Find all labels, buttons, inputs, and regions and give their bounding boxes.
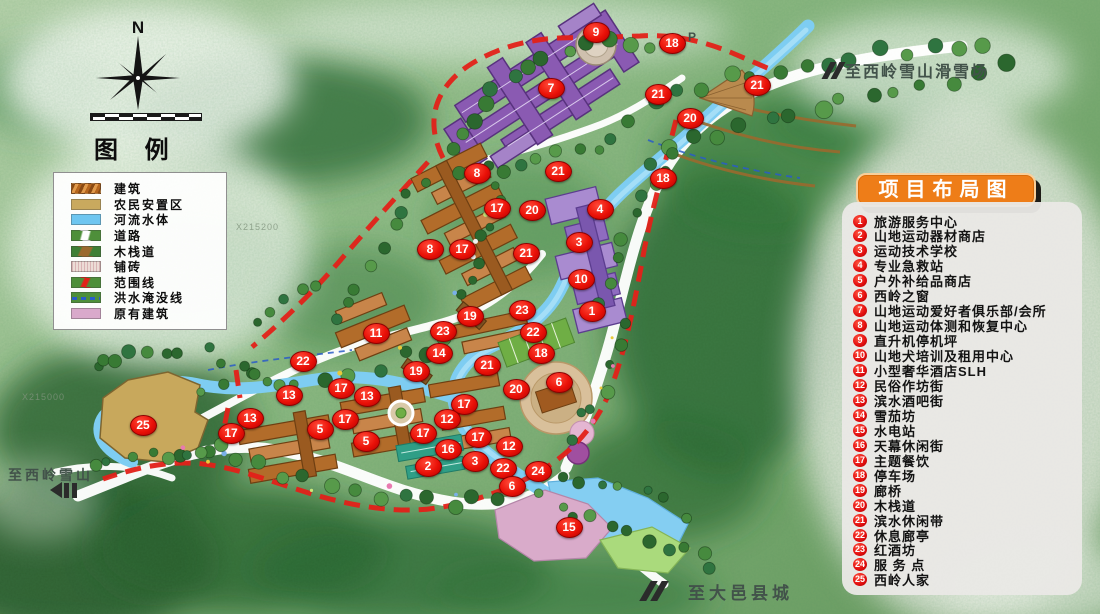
- project-item-number: 23: [853, 543, 867, 556]
- project-item-number: 12: [853, 379, 867, 392]
- project-item-number: 19: [853, 484, 867, 497]
- map-marker-25: 25: [130, 415, 157, 436]
- legend-swatch-resettlement: [71, 199, 101, 210]
- map-marker-12: 12: [496, 436, 523, 457]
- map-marker-15: 15: [556, 517, 583, 538]
- project-item-25: 25西岭人家: [853, 573, 1074, 587]
- map-marker-18: 18: [528, 343, 555, 364]
- project-item-number: 24: [853, 558, 867, 571]
- map-marker-22: 22: [290, 351, 317, 372]
- scale-bar-segment: [91, 117, 201, 120]
- legend-swatch-boundary: [71, 277, 101, 288]
- map-marker-12: 12: [434, 409, 461, 430]
- xiling-arrow-icon: [50, 482, 62, 498]
- roundabout: [389, 401, 413, 425]
- project-item-number: 22: [853, 529, 867, 542]
- scale-bar: [90, 113, 202, 121]
- map-marker-9: 9: [583, 22, 610, 43]
- project-item-number: 21: [853, 514, 867, 527]
- map-marker-23: 23: [430, 321, 457, 342]
- legend-label: 铺砖: [114, 258, 142, 275]
- map-marker-21: 21: [645, 84, 672, 105]
- map-marker-8: 8: [464, 163, 491, 184]
- project-item-number: 9: [853, 334, 867, 347]
- map-marker-20: 20: [503, 379, 530, 400]
- map-marker-21: 21: [545, 161, 572, 182]
- map-marker-19: 19: [403, 361, 430, 382]
- map-marker-5: 5: [307, 419, 334, 440]
- map-marker-6: 6: [546, 372, 573, 393]
- project-item-number: 8: [853, 319, 867, 332]
- legend-item: 木栈道: [71, 245, 220, 258]
- legend-swatch-floodline: [71, 292, 101, 303]
- map-marker-13: 13: [354, 386, 381, 407]
- map-marker-21: 21: [513, 243, 540, 264]
- map-marker-3: 3: [566, 232, 593, 253]
- legend-item: 道路: [71, 229, 220, 242]
- map-marker-18: 18: [659, 33, 686, 54]
- legend-label: 原有建筑: [114, 305, 170, 322]
- road-label-dayi: 至大邑县城: [688, 579, 793, 604]
- project-item-label: 西岭人家: [874, 570, 930, 589]
- project-item-number: 17: [853, 454, 867, 467]
- legend-item: 铺砖: [71, 260, 220, 273]
- project-item-list: 1旅游服务中心2山地运动器材商店3运动技术学校4专业急救站5户外补给品商店6西岭…: [842, 202, 1082, 595]
- legend-item: 原有建筑: [71, 307, 220, 320]
- project-item-number: 15: [853, 424, 867, 437]
- road-label-parking-p: P: [688, 30, 696, 44]
- legend-swatch-water: [71, 214, 101, 225]
- project-item-number: 25: [853, 573, 867, 586]
- legend-label: 道路: [114, 227, 142, 244]
- map-marker-21: 21: [474, 355, 501, 376]
- legend-item: 洪水淹没线: [71, 291, 220, 304]
- map-marker-22: 22: [520, 322, 547, 343]
- xiling-arrow-icon: [72, 483, 77, 498]
- site-plan-map: N 图 例 建筑农民安置区河流水体道路木栈道铺砖范围线洪水淹没线原有建筑 项目布…: [0, 0, 1100, 614]
- map-marker-24: 24: [525, 461, 552, 482]
- map-marker-17: 17: [449, 239, 476, 260]
- project-item-number: 4: [853, 259, 867, 272]
- grid-coordinate-label: X215000: [22, 392, 65, 402]
- legend-label: 农民安置区: [114, 196, 184, 213]
- legend-label: 范围线: [114, 274, 156, 291]
- project-item-number: 16: [853, 439, 867, 452]
- map-marker-2: 2: [415, 456, 442, 477]
- grid-coordinate-label: X215200: [236, 222, 279, 232]
- legend-label: 建筑: [114, 180, 142, 197]
- legend-title: 图 例: [94, 130, 179, 165]
- map-marker-17: 17: [218, 423, 245, 444]
- map-marker-17: 17: [328, 378, 355, 399]
- project-item-number: 1: [853, 215, 867, 228]
- legend-label: 木栈道: [114, 243, 156, 260]
- project-item-number: 18: [853, 469, 867, 482]
- map-marker-1: 1: [579, 301, 606, 322]
- map-marker-4: 4: [587, 199, 614, 220]
- legend-item: 河流水体: [71, 213, 220, 226]
- map-marker-16: 16: [435, 439, 462, 460]
- map-marker-21: 21: [744, 75, 771, 96]
- legend-item: 农民安置区: [71, 198, 220, 211]
- legend-swatch-boardwalk: [71, 246, 101, 257]
- project-item-number: 10: [853, 349, 867, 362]
- project-item-number: 5: [853, 274, 867, 287]
- map-marker-20: 20: [519, 200, 546, 221]
- compass-rose-icon: [92, 34, 184, 112]
- road-label-ski-resort: 至西岭雪山滑雪场: [845, 58, 989, 82]
- map-marker-3: 3: [462, 451, 489, 472]
- project-item-number: 6: [853, 289, 867, 302]
- project-item-number: 20: [853, 499, 867, 512]
- legend-label: 洪水淹没线: [114, 289, 184, 306]
- map-marker-17: 17: [484, 198, 511, 219]
- legend-swatch-road: [71, 230, 101, 241]
- map-marker-7: 7: [538, 78, 565, 99]
- map-marker-17: 17: [332, 409, 359, 430]
- legend-swatch-building: [71, 183, 101, 194]
- map-marker-17: 17: [410, 423, 437, 444]
- project-item-number: 13: [853, 394, 867, 407]
- project-item-number: 2: [853, 229, 867, 242]
- legend-swatch-existing: [71, 308, 101, 319]
- map-marker-13: 13: [276, 385, 303, 406]
- map-marker-14: 14: [426, 343, 453, 364]
- project-item-number: 11: [853, 364, 867, 377]
- map-marker-19: 19: [457, 306, 484, 327]
- xiling-arrow-icon: [64, 483, 69, 498]
- legend-item: 范围线: [71, 276, 220, 289]
- map-marker-23: 23: [509, 300, 536, 321]
- map-marker-5: 5: [353, 431, 380, 452]
- map-marker-17: 17: [465, 427, 492, 448]
- legend-item: 建筑: [71, 182, 220, 195]
- map-marker-10: 10: [568, 269, 595, 290]
- map-marker-11: 11: [363, 323, 390, 344]
- map-marker-8: 8: [417, 239, 444, 260]
- legend-swatch-paving: [71, 261, 101, 272]
- project-item-number: 7: [853, 304, 867, 317]
- project-item-number: 3: [853, 244, 867, 257]
- legend-box: 建筑农民安置区河流水体道路木栈道铺砖范围线洪水淹没线原有建筑: [53, 172, 227, 330]
- map-marker-18: 18: [650, 168, 677, 189]
- map-marker-20: 20: [677, 108, 704, 129]
- map-marker-6: 6: [499, 476, 526, 497]
- project-item-number: 14: [853, 409, 867, 422]
- legend-label: 河流水体: [114, 211, 170, 228]
